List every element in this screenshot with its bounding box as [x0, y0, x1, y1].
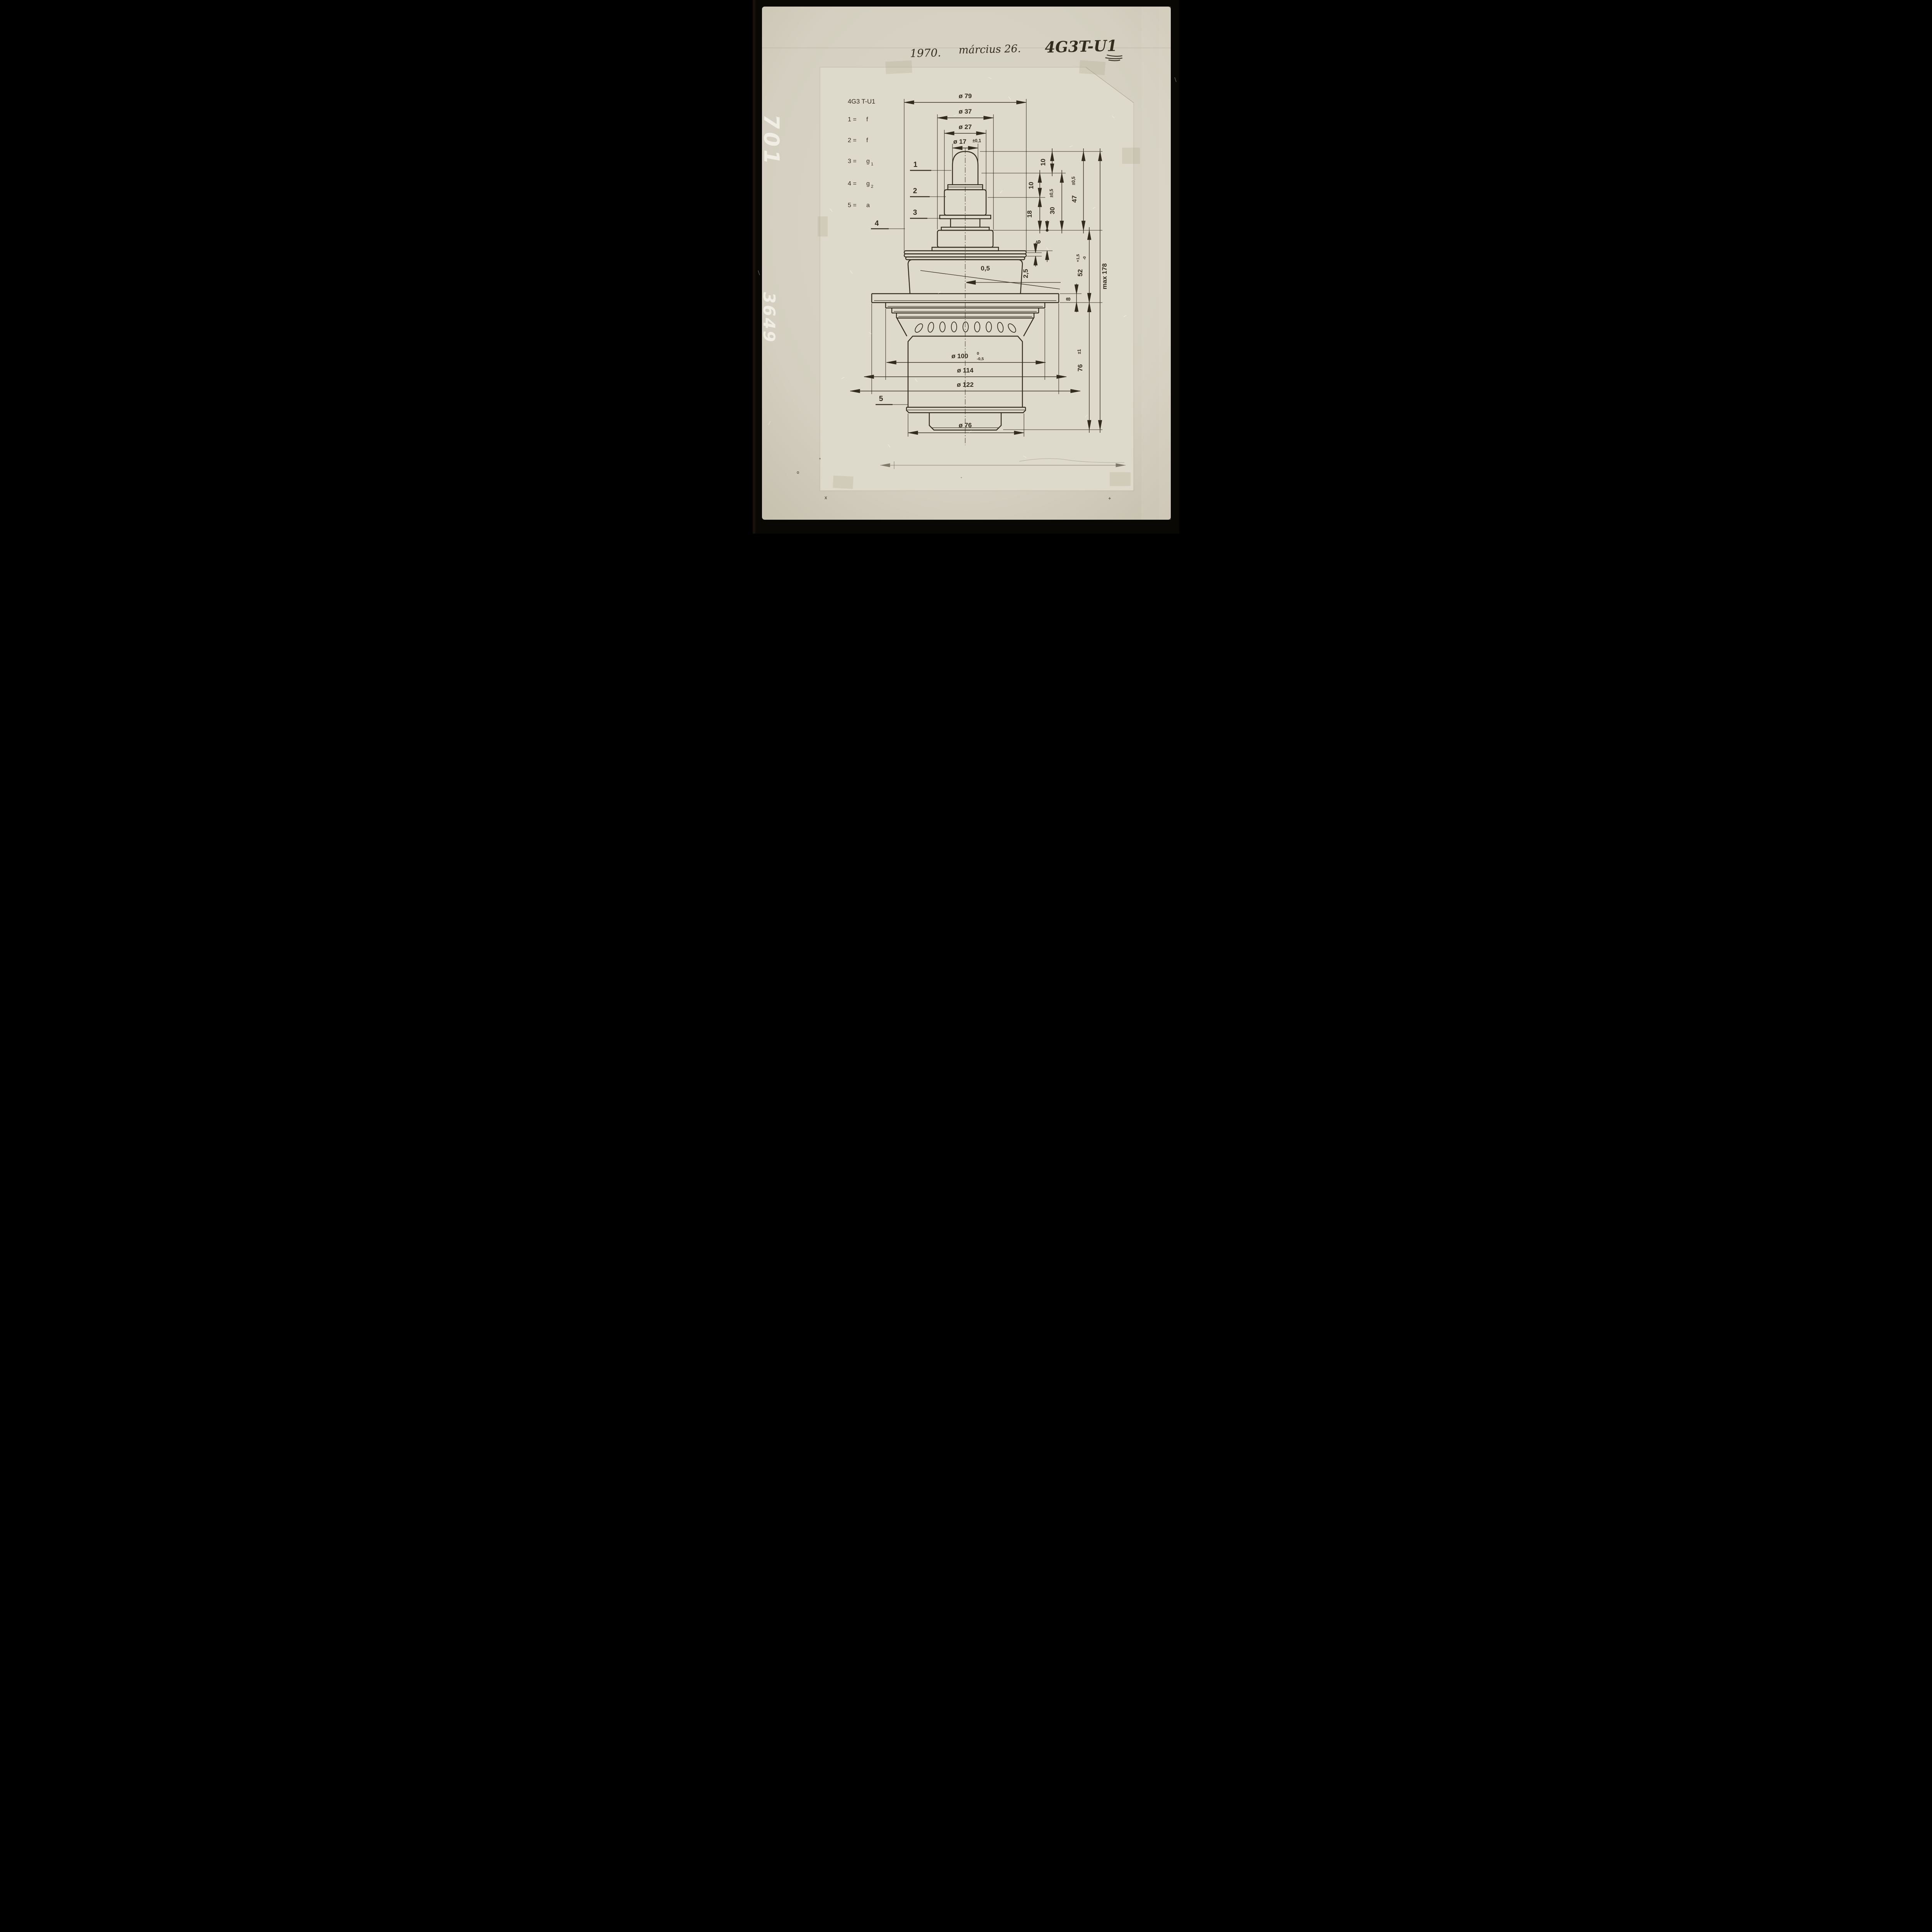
dim-30-tol: ±0,5 [1049, 189, 1054, 197]
legend-key: 4 = [848, 180, 857, 187]
dim-0-5: 0,5 [981, 265, 990, 272]
dim-52-sub: -0 [1082, 256, 1087, 260]
part-label-4: 4 [875, 219, 879, 228]
mark-plus: + [1108, 495, 1111, 501]
legend-key: 1 = [848, 116, 857, 123]
dim-diameter-122: ø 122 [957, 381, 973, 388]
dim-diameter-100: ø 100 [951, 352, 968, 360]
legend-value: f [866, 116, 868, 123]
dim-52-sup: +1,5 [1076, 254, 1080, 262]
part-label-3: 3 [913, 209, 917, 217]
dim-76-vertical: 76 [1077, 364, 1084, 372]
dim-diameter-27: ø 27 [959, 123, 972, 131]
legend-value: g [866, 158, 870, 165]
dim-8: 8 [1065, 297, 1072, 301]
dim-10-lower: 10 [1027, 182, 1035, 189]
dim-30: 30 [1049, 207, 1056, 214]
legend-value: f [866, 137, 868, 144]
film-edge-code-part1: 701 [759, 114, 784, 167]
dim-52: 52 [1077, 269, 1084, 277]
legend-value: g [866, 180, 870, 187]
legend-key: 5 = [848, 202, 857, 209]
dim-18: 18 [1026, 211, 1033, 218]
dim-47: 47 [1071, 196, 1078, 203]
mark-x: x [825, 495, 827, 500]
dim-diameter-100-sup: 0 [977, 351, 979, 356]
dim-diameter-17-tol: ±0,1 [973, 139, 981, 143]
dim-max-178: max 178 [1101, 263, 1108, 289]
part-label-5: 5 [879, 395, 883, 403]
mark-o: o [797, 470, 799, 475]
dim-diameter-76: ø 76 [959, 422, 972, 429]
dim-2-5: 2,5 [1022, 269, 1029, 278]
drawing-sheet [820, 67, 1134, 491]
print-light-band [1141, 7, 1159, 520]
handwritten-date: március 26. [959, 43, 1021, 56]
dim-diameter-37: ø 37 [959, 108, 972, 115]
legend-value-sub: 2 [871, 184, 873, 189]
legend-value: a [866, 202, 870, 209]
handwritten-code: 4G3T-U1 [1044, 37, 1117, 57]
legend-value-sub: 1 [871, 162, 873, 167]
legend-title: 4G3 T-U1 [848, 98, 875, 105]
dim-diameter-114: ø 114 [957, 367, 974, 374]
part-label-2: 2 [913, 187, 917, 195]
dim-diameter-100-sub: -0,5 [977, 357, 984, 361]
part-label-1: 1 [913, 161, 918, 169]
handwritten-year: 1970. [910, 46, 941, 60]
dim-diameter-17: ø 17 [953, 138, 966, 145]
film-edge-code-part2: 3649 [760, 292, 779, 344]
legend-key: 2 = [848, 137, 857, 144]
dim-76-vertical-tol: ±1 [1077, 349, 1082, 354]
film-edge-strip [753, 0, 755, 534]
print-light-band-2 [1159, 7, 1171, 520]
legend-key: 3 = [848, 158, 857, 165]
film-photograph: 1970. március 26. 4G3T-U1 4G3 T-U1 1 = f… [753, 0, 1179, 534]
dim-10-upper: 10 [1039, 159, 1047, 166]
dim-diameter-79: ø 79 [959, 92, 972, 100]
mark-dot [819, 458, 821, 459]
dim-47-tol: ±0,5 [1071, 176, 1076, 185]
mark-dot-2 [961, 477, 962, 478]
technical-drawing-photo: 1970. március 26. 4G3T-U1 4G3 T-U1 1 = f… [753, 0, 1179, 534]
dim-6: 6 [1035, 240, 1042, 243]
